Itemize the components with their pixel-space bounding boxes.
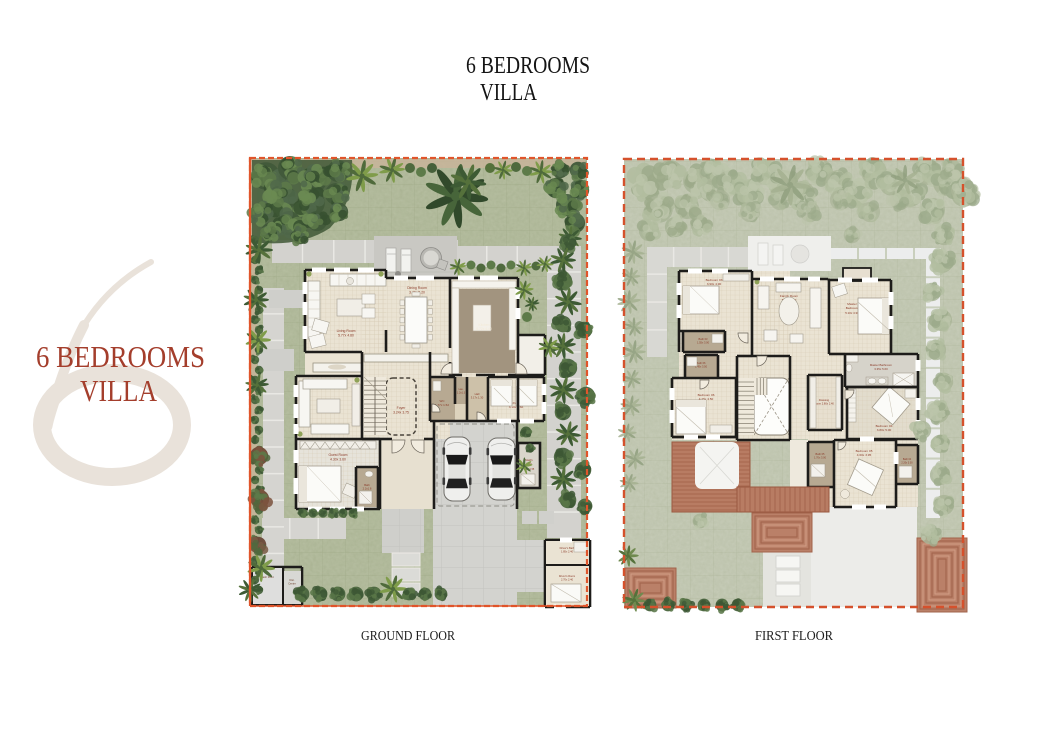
svg-text:Dressing: Dressing (819, 398, 830, 402)
svg-text:3.24x 3.75: 3.24x 3.75 (393, 410, 409, 414)
svg-text:1.55x 3.00: 1.55x 3.00 (697, 341, 710, 345)
svg-text:4.60x 3.95: 4.60x 3.95 (857, 453, 872, 457)
svg-text:Room 2.80x 2.40: Room 2.80x 2.40 (814, 402, 834, 406)
svg-text:VILLA: VILLA (80, 373, 157, 408)
svg-text:FIRST FLOOR: FIRST FLOOR (755, 629, 834, 644)
svg-text:Bath 06: Bath 06 (697, 361, 706, 365)
svg-text:Maid's: Maid's (525, 458, 533, 462)
svg-text:Bedroom: Bedroom (846, 306, 859, 310)
svg-text:Bath: Bath (364, 483, 370, 487)
svg-text:3.17x 1.30: 3.17x 1.30 (471, 396, 484, 400)
svg-text:2.70x 2.40: 2.70x 2.40 (561, 578, 574, 582)
svg-text:3.80x 5.00: 3.80x 5.00 (877, 428, 892, 432)
svg-text:4.30x 3.60: 4.30x 3.60 (330, 457, 346, 461)
svg-text:1.85x 2.40: 1.85x 2.40 (561, 550, 574, 554)
svg-text:Driver's Room: Driver's Room (559, 574, 575, 578)
svg-text:5.77x 4.80: 5.77x 4.80 (338, 333, 354, 337)
svg-text:Center: Center (288, 582, 296, 585)
svg-text:6.72x 4.40: 6.72x 4.40 (476, 327, 492, 331)
svg-text:Driver's Bath: Driver's Bath (560, 546, 575, 550)
svg-text:1.2x1.3: 1.2x1.3 (457, 391, 466, 394)
svg-text:VILLA: VILLA (480, 80, 538, 106)
svg-text:6 BEDROOMS: 6 BEDROOMS (466, 53, 590, 79)
svg-text:Hall: Hall (475, 392, 480, 396)
svg-text:Bath 05: Bath 05 (816, 452, 825, 456)
svg-text:2.2x1.8: 2.2x1.8 (363, 487, 372, 491)
svg-text:3.90x 4.90: 3.90x 4.90 (707, 282, 722, 286)
svg-text:Bath 03: Bath 03 (699, 337, 708, 341)
svg-text:3.35x 5.60: 3.35x 5.60 (874, 367, 888, 371)
svg-text:2.20x 3.00: 2.20x 3.00 (901, 461, 913, 464)
svg-text:5.10x 4.30: 5.10x 4.30 (845, 311, 859, 315)
svg-text:GROUND FLOOR: GROUND FLOOR (361, 629, 456, 644)
svg-text:6 BEDROOMS: 6 BEDROOMS (36, 339, 205, 374)
svg-text:1.70x 3.00: 1.70x 3.00 (814, 456, 827, 460)
